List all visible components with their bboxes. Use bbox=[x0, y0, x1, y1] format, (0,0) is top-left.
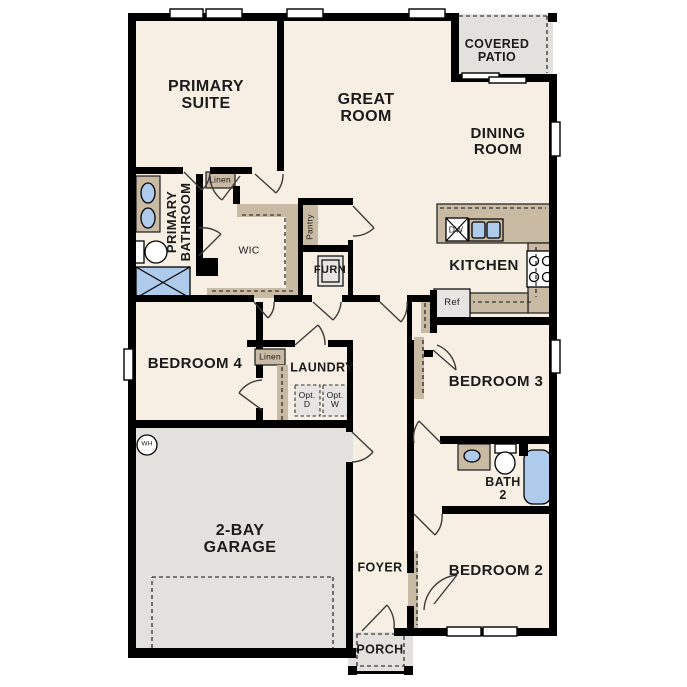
label-porch: PORCH bbox=[356, 643, 403, 656]
window-icon bbox=[551, 122, 560, 156]
kitchen-counter-bottom bbox=[470, 293, 528, 313]
toilet-tank-icon bbox=[135, 241, 144, 263]
label-dining-room: DINING ROOM bbox=[471, 126, 526, 158]
label-opt-dryer: Opt. D bbox=[299, 391, 316, 409]
label-opt-washer: Opt. W bbox=[327, 391, 344, 409]
label-linen-hall: Linen bbox=[259, 353, 281, 362]
label-primary-bathroom: PRIMARY BATHROOM bbox=[165, 183, 193, 262]
label-foyer: FOYER bbox=[357, 561, 402, 574]
label-water-heater: WH bbox=[141, 442, 152, 449]
slider-door-icon bbox=[489, 77, 526, 83]
window-icon bbox=[124, 349, 133, 380]
kitchen-sink-icon bbox=[487, 222, 500, 238]
label-refrigerator: Ref bbox=[444, 298, 459, 308]
floor-plan: PRIMARY SUITE GREAT ROOM COVERED PATIO D… bbox=[0, 0, 687, 687]
wic-shelf-top bbox=[237, 204, 298, 217]
bath2-sink-icon bbox=[464, 450, 480, 462]
vanity-sink-icon bbox=[141, 208, 155, 228]
label-bedroom-3: BEDROOM 3 bbox=[449, 374, 543, 390]
label-great-room: GREAT ROOM bbox=[338, 92, 395, 126]
burner-icon bbox=[530, 257, 539, 266]
window-icon bbox=[447, 627, 481, 636]
label-dishwasher: DW bbox=[449, 226, 464, 235]
laundry-wall-strip bbox=[277, 365, 288, 423]
window-icon bbox=[206, 9, 242, 18]
label-furnace: FURN bbox=[314, 265, 346, 277]
label-linen-upper: Linen bbox=[209, 176, 231, 185]
window-icon bbox=[170, 9, 203, 18]
window-icon bbox=[483, 627, 517, 636]
label-wic: WIC bbox=[238, 245, 259, 256]
label-laundry: LAUNDRY bbox=[290, 361, 353, 374]
kitchen-sink-icon bbox=[472, 222, 485, 238]
label-pantry: Pantry bbox=[306, 214, 315, 240]
label-covered-patio: COVERED PATIO bbox=[465, 38, 530, 65]
label-bedroom-4: BEDROOM 4 bbox=[148, 356, 242, 372]
bathtub-icon bbox=[524, 450, 551, 504]
window-icon bbox=[551, 340, 560, 373]
window-icon bbox=[409, 9, 445, 18]
label-bath-2: BATH 2 bbox=[485, 476, 520, 503]
label-bedroom-2: BEDROOM 2 bbox=[449, 563, 543, 579]
label-kitchen: KITCHEN bbox=[449, 258, 518, 274]
burner-icon bbox=[530, 273, 539, 282]
vanity-sink-icon bbox=[141, 183, 155, 203]
wic-shelf-right bbox=[286, 217, 298, 288]
label-primary-suite: PRIMARY SUITE bbox=[168, 79, 244, 113]
window-icon bbox=[287, 9, 323, 18]
label-garage: 2-BAY GARAGE bbox=[204, 523, 277, 557]
toilet2-icon bbox=[495, 452, 515, 474]
